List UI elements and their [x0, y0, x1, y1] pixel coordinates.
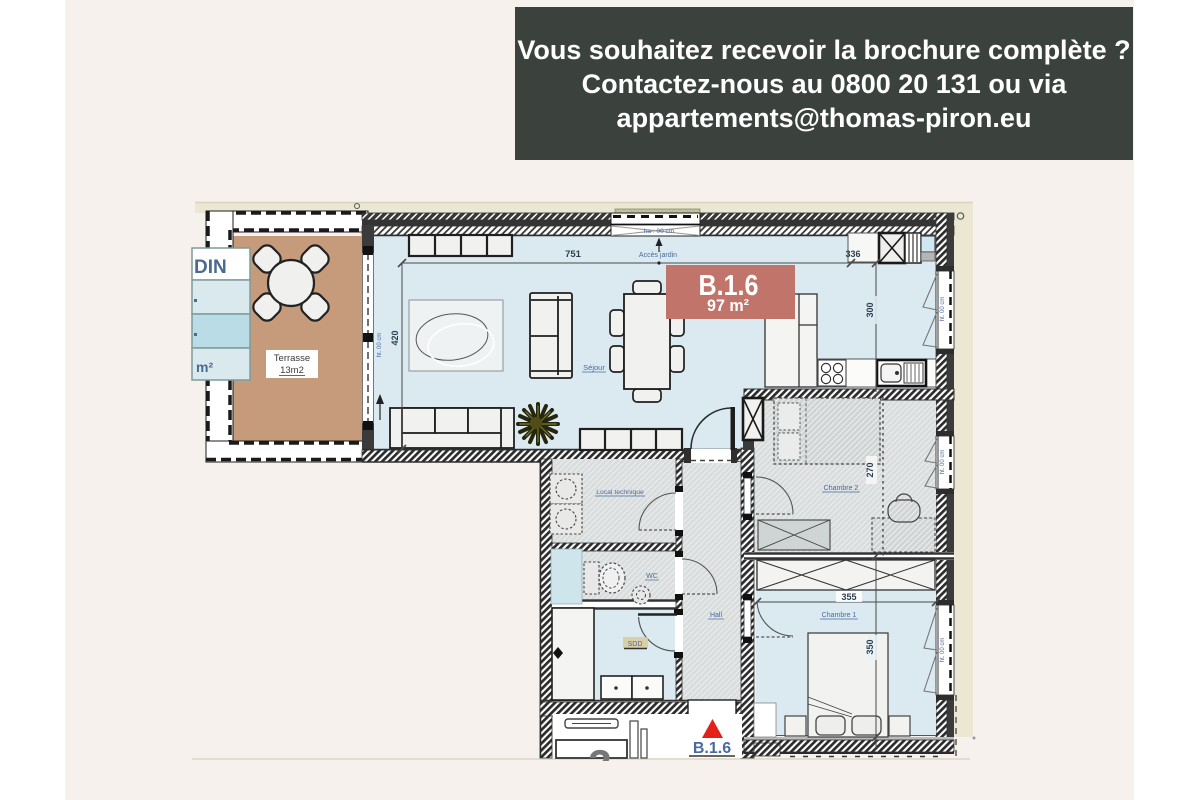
svg-text:SDD: SDD — [628, 641, 643, 648]
svg-text:ht. 00 cm: ht. 00 cm — [940, 297, 946, 322]
svg-text:Accès jardin: Accès jardin — [639, 252, 677, 259]
svg-text:97 m²: 97 m² — [707, 296, 749, 315]
svg-text:Chambre 2: Chambre 2 — [824, 485, 859, 492]
svg-text:350: 350 — [865, 639, 875, 654]
svg-text:DIN: DIN — [194, 257, 227, 278]
svg-text:270: 270 — [865, 462, 875, 477]
svg-text:13m2: 13m2 — [280, 365, 304, 376]
svg-text:WC: WC — [646, 573, 658, 580]
svg-text:B.1.6: B.1.6 — [693, 740, 731, 757]
svg-text:300: 300 — [865, 302, 875, 317]
svg-text:751: 751 — [565, 249, 582, 260]
svg-text:Chambre 1: Chambre 1 — [822, 612, 857, 619]
svg-text:ha : 00 cm: ha : 00 cm — [644, 228, 674, 235]
svg-text:420: 420 — [390, 330, 400, 345]
svg-text:ht. 00 cm: ht. 00 cm — [940, 450, 946, 475]
svg-text:ht. 00 cm: ht. 00 cm — [377, 333, 383, 358]
svg-text:336: 336 — [845, 249, 860, 259]
svg-text:Local technique: Local technique — [596, 489, 644, 496]
svg-text:Terrasse: Terrasse — [274, 353, 310, 364]
svg-text:m²: m² — [196, 359, 213, 375]
svg-text:355: 355 — [841, 592, 856, 602]
svg-text:ht. 00 cm: ht. 00 cm — [940, 638, 946, 663]
svg-text:Hall: Hall — [710, 612, 723, 619]
svg-text:Séjour: Séjour — [583, 363, 605, 372]
